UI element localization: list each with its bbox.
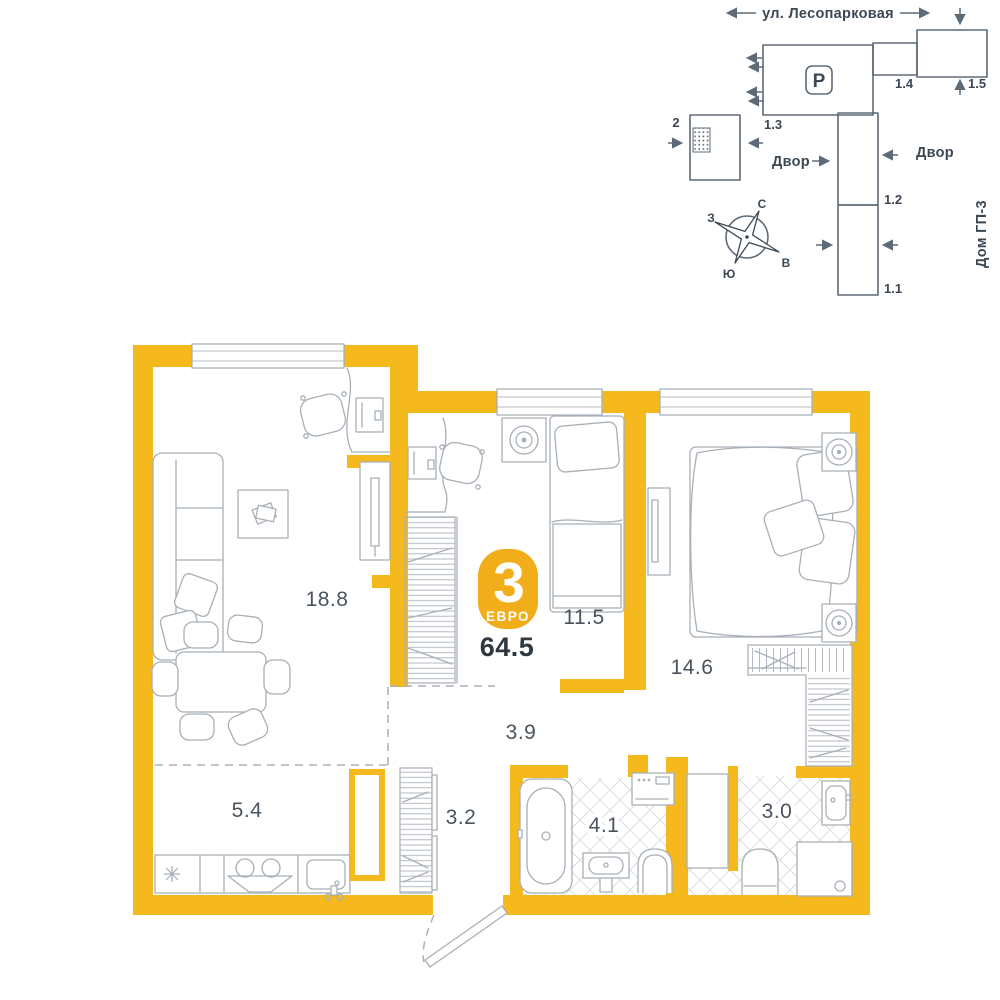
compass-west: З	[707, 211, 715, 225]
wc-sink	[822, 781, 852, 825]
building-1-4-outline	[873, 43, 917, 75]
washing-machine	[632, 773, 674, 805]
windows	[192, 344, 812, 415]
layout-type-label: ЕВРО	[486, 609, 530, 624]
bedroom2-area: 14.6	[671, 656, 714, 679]
yard-label-left: Двор	[772, 154, 810, 170]
kitchen-area: 5.4	[232, 799, 263, 822]
neighbor-house-label: Дом ГП-3	[974, 200, 990, 268]
bedroom-2-window	[660, 389, 812, 415]
rooms-badge: 3 ЕВРО	[478, 549, 538, 629]
current-building: 2	[668, 115, 763, 180]
living-room-window	[192, 344, 344, 368]
pillow	[554, 421, 620, 472]
plan-canvas: ул. Лесопарковая Р 1.3 1.4 1.5 2	[0, 0, 1000, 1000]
bedroom2-nightstand-bottom	[822, 604, 856, 642]
bedroom1-area: 11.5	[563, 606, 604, 629]
tv-stand	[360, 462, 390, 560]
bedroom1-wardrobe	[405, 517, 457, 683]
building-1-2-label: 1.2	[884, 192, 902, 207]
coffee-table	[238, 490, 288, 538]
street-label: ул. Лесопарковая	[762, 6, 894, 22]
floorplan-page: ул. Лесопарковая Р 1.3 1.4 1.5 2	[0, 0, 1000, 1000]
bathtub	[518, 779, 572, 893]
unit-location-marker	[693, 128, 710, 152]
bedroom2-tv-stand	[648, 488, 670, 575]
living-room-area: 18.8	[306, 588, 349, 611]
corridor-closet	[400, 768, 437, 893]
building-1-2-outline	[838, 113, 878, 205]
shower-cabin	[797, 842, 852, 896]
building-1-4-label: 1.4	[895, 76, 914, 91]
building-1-3-label: 1.3	[764, 117, 782, 132]
compass-north: С	[758, 197, 767, 211]
kitchen-door	[352, 772, 382, 878]
wc-door	[687, 774, 728, 868]
chair	[227, 614, 264, 644]
bedroom-1-window	[497, 389, 602, 415]
yard-label-right: Двор	[916, 145, 954, 161]
entrance-door	[423, 906, 507, 967]
site-plan: ул. Лесопарковая Р 1.3 1.4 1.5 2	[668, 6, 990, 296]
apartment-plan: 18.8 11.5 14.6 3.9 5.4 3.2 4.1 3.0 3 ЕВР…	[133, 344, 870, 967]
rooms-count: 3	[493, 551, 525, 615]
building-1-5-outline	[917, 30, 987, 77]
building-2-label: 2	[672, 115, 679, 130]
wc-toilet-icon	[742, 849, 778, 895]
bedroom1-nightstand	[502, 418, 546, 462]
bathroom-area: 4.1	[589, 814, 620, 837]
kitchen-counter	[155, 855, 350, 900]
parking-letter: Р	[813, 71, 826, 92]
bedroom2-wardrobe	[748, 645, 852, 766]
compass-icon: С З В Ю	[707, 197, 790, 281]
building-1-1-outline	[838, 205, 878, 295]
corridor-area: 3.2	[446, 806, 477, 829]
fridge-icon	[164, 866, 180, 882]
chair	[152, 662, 178, 696]
toilet-icon	[638, 849, 672, 893]
chair	[264, 660, 290, 694]
chair	[184, 622, 218, 648]
bedroom2-nightstand-top	[822, 433, 856, 471]
workplace-living	[298, 368, 390, 452]
kitchen-sink-icon	[307, 860, 345, 900]
single-bed	[550, 416, 624, 612]
building-1-5-label: 1.5	[968, 76, 986, 91]
compass-east: В	[782, 256, 791, 270]
compass-south: Ю	[723, 267, 735, 281]
building-1-1-label: 1.1	[884, 281, 902, 296]
wc-area: 3.0	[762, 800, 793, 823]
chair	[180, 714, 214, 740]
parking-icon: Р	[806, 66, 832, 94]
total-area: 64.5	[480, 632, 535, 662]
bedroom1-desk	[405, 418, 485, 512]
hallway-area: 3.9	[506, 721, 537, 744]
